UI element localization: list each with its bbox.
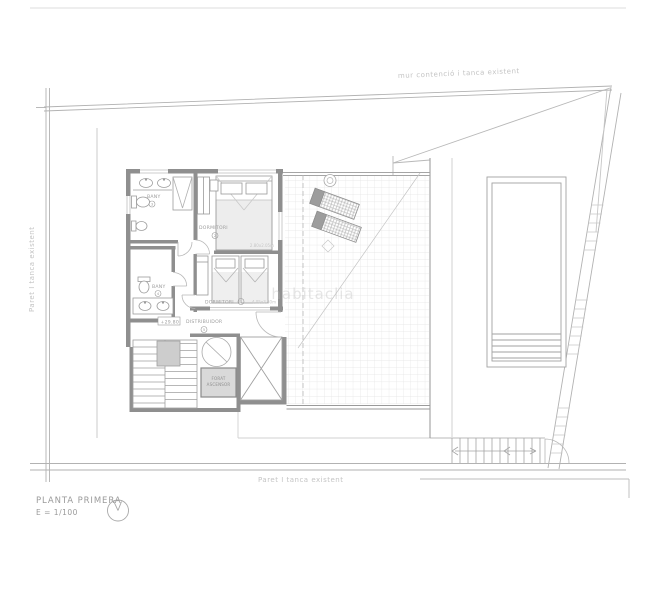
terrace-parapet	[287, 406, 431, 410]
title-block: PLANTA PRIMERA E = 1/100	[36, 496, 129, 521]
bany2-number: 4	[157, 292, 160, 296]
bidet-icon	[132, 221, 148, 231]
terrace-drain-icon	[324, 175, 336, 187]
boundary-labels: mur contenció i tanca existent Paret I t…	[28, 67, 520, 484]
door-arc	[182, 295, 195, 309]
double-vanity	[133, 298, 173, 314]
door-arc	[178, 242, 192, 256]
skylight-square	[241, 337, 283, 400]
elevator-shaft: FORAT ASCENSOR	[201, 368, 236, 397]
bottom-boundary-label: Paret I tanca existent	[258, 476, 343, 484]
furniture	[197, 176, 273, 303]
exterior-staircase	[452, 438, 540, 463]
wardrobe	[198, 177, 210, 214]
left-boundary-label: Paret I tanca existent	[28, 227, 36, 312]
hallway-number: 5	[203, 328, 205, 332]
pillow	[216, 259, 235, 268]
round-feature	[202, 338, 231, 367]
pool	[487, 177, 566, 367]
nightstand	[210, 180, 218, 191]
top-boundary-label: mur contenció i tanca existent	[398, 67, 520, 80]
bany1-label: BANY	[147, 194, 161, 200]
pillow	[246, 183, 267, 194]
hallway-label: DISTRIBUIDOR	[186, 319, 223, 325]
master-bedroom-dims: 2.80x2.05m	[250, 243, 274, 248]
main-staircase	[133, 340, 197, 408]
level-marker: +29.80	[161, 319, 180, 325]
pillow	[221, 183, 242, 194]
master-bedroom-number: 2	[214, 234, 216, 238]
plan-scale: E = 1/100	[36, 508, 78, 517]
watermark: habitaclia	[271, 285, 354, 303]
pillow	[245, 259, 264, 268]
floor-plan-page: FORAT ASCENSOR	[0, 0, 656, 600]
master-bedroom-label: DORMITORI	[199, 225, 228, 231]
twin-beds	[212, 256, 268, 303]
desk	[197, 256, 209, 295]
elevator-label-line2: ASCENSOR	[207, 382, 231, 387]
stair-landing	[157, 341, 180, 366]
door-arc	[173, 273, 187, 287]
double-bed	[210, 176, 272, 250]
floor-plan-canvas: FORAT ASCENSOR	[0, 0, 656, 600]
gate-door-arc	[545, 439, 569, 463]
elevator-label-line1: FORAT	[212, 376, 226, 381]
plan-title: PLANTA PRIMERA	[36, 496, 122, 506]
door-arc	[196, 240, 210, 254]
bedroom2-label: DORMITORI	[205, 300, 234, 306]
terrace-door-arc	[256, 312, 281, 337]
bedroom2-number: 1	[240, 300, 242, 304]
bany2-label: BANY	[152, 284, 166, 290]
bany1-number: 3	[151, 203, 153, 207]
toilet-icon	[138, 277, 150, 293]
shower-icon	[173, 177, 192, 210]
bathroom-fixtures	[132, 177, 193, 314]
